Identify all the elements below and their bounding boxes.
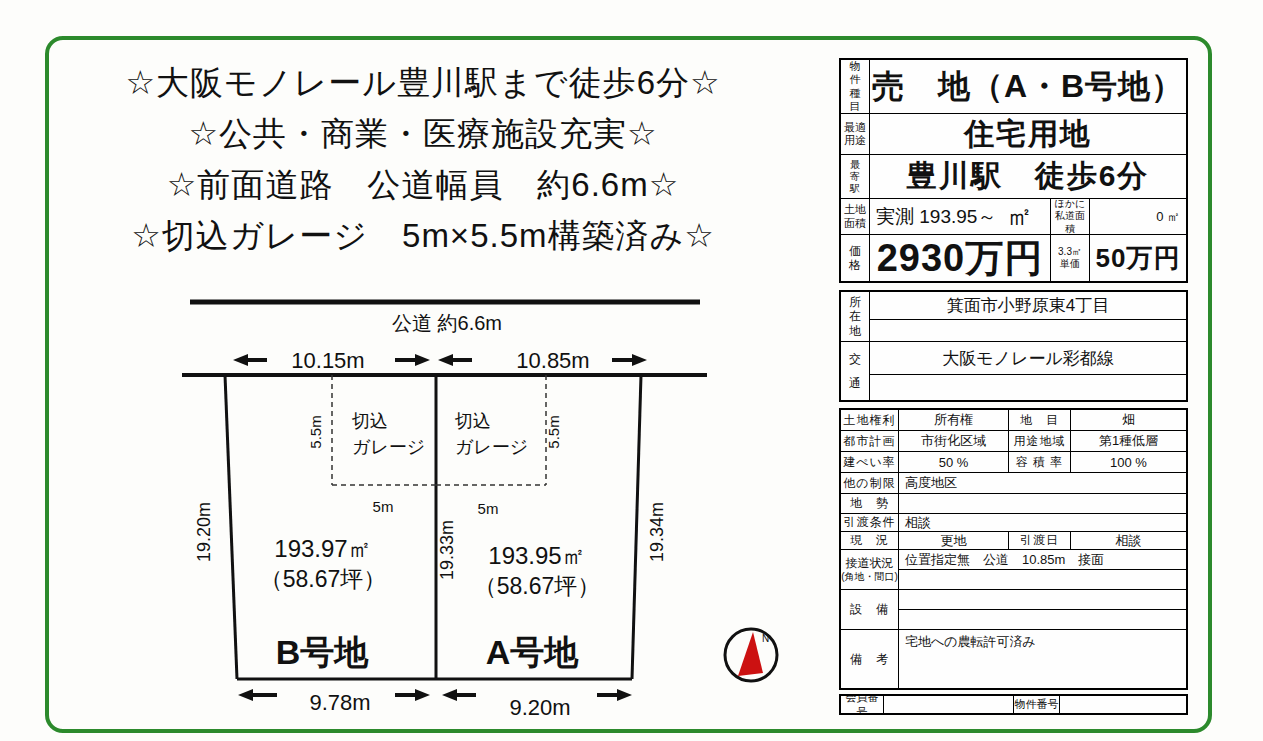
headline-line-1: ☆大阪モノレール豊川駅まで徒歩6分☆ <box>60 57 786 108</box>
private-road-value: 0 ㎡ <box>1090 199 1186 235</box>
coverage-value: 50 % <box>899 452 1009 473</box>
arrow-right-icon <box>617 689 632 701</box>
compass-north-icon: N <box>725 629 777 681</box>
parcel-right-line <box>632 375 641 679</box>
parcel-a-name: A号地 <box>486 633 580 671</box>
side-right-label: 19.34m <box>647 502 667 562</box>
use-label: 最適用途 <box>841 114 870 155</box>
floorratio-label: 容 積 率 <box>1009 452 1071 473</box>
rights-label: 土地権利 <box>841 410 899 431</box>
transport-value-row2 <box>870 375 1186 400</box>
restrict-label: 他の制限 <box>841 473 899 494</box>
road-contact-label: 接道状況 (角地・間口) <box>841 550 899 590</box>
garage-b-width-label: 5m <box>373 498 394 515</box>
transport-label: 交通 <box>841 342 870 400</box>
cityplan-value: 市街化区域 <box>899 431 1009 452</box>
location-value: 箕面市小野原東4丁目 <box>870 292 1186 320</box>
spec-table-location: 所在地 箕面市小野原東4丁目 交通 大阪モノレール彩都線 <box>839 290 1188 402</box>
facilities-row2 <box>899 610 1186 630</box>
handover-date-label: 引渡日 <box>1009 532 1071 550</box>
property-no-value <box>1060 696 1186 713</box>
garage-a-width-label: 5m <box>478 500 499 517</box>
coverage-label: 建ぺい率 <box>841 452 899 473</box>
status-label: 現 況 <box>841 532 899 550</box>
category-value: 畑 <box>1071 410 1186 431</box>
road-label: 公道 約6.6m <box>392 312 502 334</box>
parcel-b-tsubo: （58.67坪） <box>260 566 387 592</box>
zoning-label: 用途地域 <box>1009 431 1071 452</box>
garage-b-depth-label: 5.5m <box>307 415 324 448</box>
b-top-width-label: 10.15m <box>291 348 364 373</box>
road-contact-sublabel: (角地・間口) <box>841 571 898 583</box>
topo-value <box>899 494 1186 514</box>
headline: ☆大阪モノレール豊川駅まで徒歩6分☆ ☆公共・商業・医療施設充実☆ ☆前面道路 … <box>60 57 786 261</box>
facilities-label: 設 備 <box>841 590 899 630</box>
garage-a-outline <box>436 375 546 485</box>
garage-a-label-1: 切込 <box>454 411 491 431</box>
parcel-b-area: 193.97㎡ <box>274 535 371 562</box>
parcel-a-bottom-width: 9.20m <box>509 695 570 720</box>
flyer-page: { "headline": { "lines": [ "☆大阪モノレール豊川駅ま… <box>0 0 1263 741</box>
area-label: 土地面積 <box>841 199 870 235</box>
location-label: 所在地 <box>841 292 870 342</box>
floorratio-value: 100 % <box>1071 452 1186 473</box>
road-contact-value: 位置指定無 公道 10.85m 接面 <box>899 550 1186 570</box>
zoning-value: 第1種低層 <box>1071 431 1186 452</box>
member-no-label: 会員番号 <box>841 696 884 713</box>
arrow-right-icon <box>632 354 647 366</box>
parcel-left-line <box>225 375 237 679</box>
topo-label: 地 勢 <box>841 494 899 514</box>
headline-line-2: ☆公共・商業・医療施設充実☆ <box>60 108 786 159</box>
property-no-label: 物件番号 <box>1014 696 1060 713</box>
b-top-dimension: 10.15m <box>233 348 430 373</box>
type-value: 売 地（A・B号地） <box>870 60 1186 114</box>
road-contact-row2 <box>899 570 1186 590</box>
spec-table-numbers: 会員番号 物件番号 <box>839 694 1188 715</box>
category-label: 地 目 <box>1009 410 1071 431</box>
b-bottom-dimension: 9.78m <box>238 689 430 715</box>
cityplan-label: 都市計画 <box>841 431 899 452</box>
headline-line-4: ☆切込ガレージ 5m×5.5m構築済み☆ <box>60 210 786 261</box>
svg-text:N: N <box>762 633 769 644</box>
area-unit: ㎡ <box>1006 199 1032 234</box>
spec-table-top: 物件種目 売 地（A・B号地） 最適用途 住宅用地 最寄駅 豊川駅 徒歩6分 土… <box>839 58 1188 283</box>
land-plot-diagram: 公道 約6.6m 10.15m 10.85m 切込 ガレージ 切込 ガレージ 5… <box>155 292 815 724</box>
private-road-label: ほかに私道面積 <box>1051 199 1090 235</box>
garage-a-label-2: ガレージ <box>455 437 528 457</box>
arrow-left-icon <box>438 354 453 366</box>
arrow-left-icon <box>238 689 253 701</box>
parcel-a-area: 193.95㎡ <box>488 542 585 569</box>
handover-date-value: 相談 <box>1071 532 1186 550</box>
spec-table-details: 土地権利 所有権 地 目 畑 都市計画 市街化区域 用途地域 第1種低層 建ぺい… <box>839 408 1188 690</box>
remarks-value: 宅地への農転許可済み <box>899 630 1186 688</box>
status-value: 更地 <box>899 532 1009 550</box>
station-label: 最寄駅 <box>841 155 870 199</box>
price-label: 価格 <box>841 235 870 281</box>
parcel-b-name: B号地 <box>276 633 370 671</box>
use-value: 住宅用地 <box>870 114 1186 155</box>
remarks-label: 備 考 <box>841 630 899 688</box>
garage-a-depth-label: 5.5m <box>545 415 562 448</box>
rights-value: 所有権 <box>899 410 1009 431</box>
headline-line-3: ☆前面道路 公道幅員 約6.6m☆ <box>60 159 786 210</box>
garage-b-label-1: 切込 <box>351 411 388 431</box>
side-center-label: 19.33m <box>437 520 457 580</box>
station-value: 豊川駅 徒歩6分 <box>870 155 1186 199</box>
price-value: 2930万円 <box>870 235 1051 281</box>
handover-value: 相談 <box>899 514 1186 532</box>
location-value-row2 <box>870 320 1186 342</box>
a-top-dimension: 10.85m <box>438 348 647 373</box>
area-value: 実測 193.95～ ㎡ <box>870 199 1051 235</box>
parcel-b-bottom-width: 9.78m <box>309 690 370 715</box>
arrow-left-icon <box>233 354 248 366</box>
side-left-label: 19.20m <box>194 502 214 562</box>
unit-price-value: 50万円 <box>1090 235 1186 281</box>
facilities-row1 <box>899 590 1186 610</box>
arrow-right-icon <box>415 689 430 701</box>
type-label: 物件種目 <box>841 60 870 114</box>
a-top-width-label: 10.85m <box>516 348 589 373</box>
member-no-value <box>884 696 1014 713</box>
unit-price-label: 3.3㎡単価 <box>1051 235 1090 281</box>
parcel-a-tsubo: （58.67坪） <box>474 573 601 599</box>
garage-b-label-2: ガレージ <box>352 437 425 457</box>
handover-label: 引渡条件 <box>841 514 899 532</box>
arrow-left-icon <box>442 689 457 701</box>
transport-value: 大阪モノレール彩都線 <box>870 342 1186 375</box>
restrict-value: 高度地区 <box>899 473 1186 494</box>
arrow-right-icon <box>415 354 430 366</box>
a-bottom-dimension: 9.20m <box>442 689 632 720</box>
